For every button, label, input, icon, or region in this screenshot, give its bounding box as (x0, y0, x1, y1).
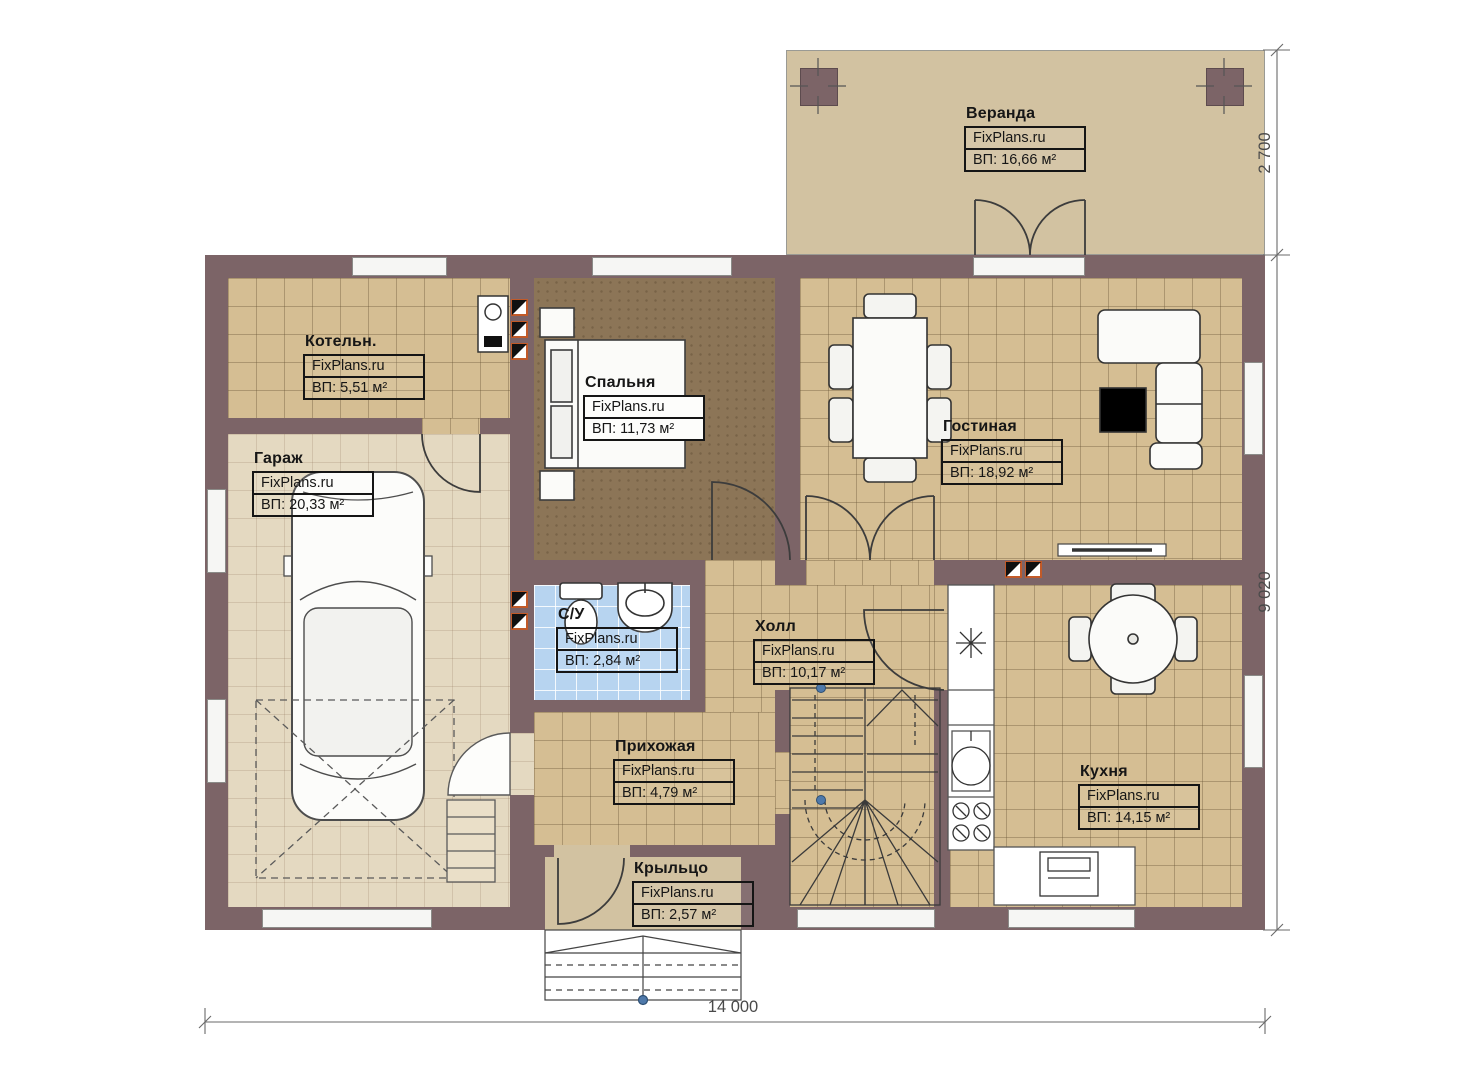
watermark: FixPlans.ru (615, 761, 733, 781)
room-area: ВП: 5,51 м² (305, 376, 423, 398)
watermark: FixPlans.ru (558, 629, 676, 649)
room-area: ВП: 2,84 м² (558, 649, 676, 671)
room-name: Холл (755, 618, 875, 636)
kitchen-table-icon (1069, 584, 1197, 694)
porch-steps-icon (545, 930, 741, 1005)
room-label-porch: Крыльцо FixPlans.ru ВП: 2,57 м² (632, 860, 754, 927)
room-info-box: FixPlans.ru ВП: 10,17 м² (753, 639, 875, 685)
survey-node-icon (817, 684, 826, 805)
room-label-veranda: Веранда FixPlans.ru ВП: 16,66 м² (964, 105, 1086, 172)
kitchen-door-icon (864, 610, 944, 690)
room-name: Спальня (585, 374, 705, 392)
room-label-boiler: Котельн. FixPlans.ru ВП: 5,51 м² (303, 333, 425, 400)
dim-house-depth: 9 020 (1256, 571, 1274, 612)
room-label-kitchen: Кухня FixPlans.ru ВП: 14,15 м² (1078, 763, 1200, 830)
room-label-bedroom: Спальня FixPlans.ru ВП: 11,73 м² (583, 374, 705, 441)
garage-step-icon (447, 800, 495, 882)
room-area: ВП: 2,57 м² (634, 903, 752, 925)
watermark: FixPlans.ru (755, 641, 873, 661)
staircase-icon (790, 688, 940, 905)
room-area: ВП: 14,15 м² (1080, 806, 1198, 828)
kitchen-sink-counter-icon (994, 847, 1135, 905)
car-icon (284, 472, 432, 820)
room-info-box: FixPlans.ru ВП: 16,66 м² (964, 126, 1086, 172)
room-info-box: FixPlans.ru ВП: 2,84 м² (556, 627, 678, 673)
room-name: Кухня (1080, 763, 1200, 781)
watermark: FixPlans.ru (254, 473, 372, 493)
room-label-living: Гостиная FixPlans.ru ВП: 18,92 м² (941, 418, 1063, 485)
room-name: Гараж (254, 450, 374, 468)
room-info-box: FixPlans.ru ВП: 18,92 м² (941, 439, 1063, 485)
entry-door-icon (558, 858, 624, 924)
room-area: ВП: 4,79 м² (615, 781, 733, 803)
room-name: Прихожая (615, 738, 735, 756)
tv-console-icon (1058, 544, 1166, 556)
garage-door-swing-icon (448, 733, 510, 795)
room-name: Веранда (966, 105, 1086, 123)
room-label-garage: Гараж FixPlans.ru ВП: 20,33 м² (252, 450, 374, 517)
dining-table-icon (829, 294, 951, 482)
bedroom-door-icon (712, 482, 790, 560)
side-table-icon (1100, 388, 1146, 432)
boiler-unit-icon (478, 296, 508, 352)
living-double-door-icon (806, 496, 934, 560)
room-area: ВП: 10,17 м² (755, 661, 873, 683)
watermark: FixPlans.ru (966, 128, 1084, 148)
boiler-door-icon (422, 434, 480, 492)
room-info-box: FixPlans.ru ВП: 14,15 м² (1078, 784, 1200, 830)
veranda-double-door-icon (975, 200, 1085, 255)
dim-house-width: 14 000 (708, 998, 758, 1016)
room-info-box: FixPlans.ru ВП: 2,57 м² (632, 881, 754, 927)
watermark: FixPlans.ru (1080, 786, 1198, 806)
room-name: С/У (558, 606, 678, 624)
room-area: ВП: 16,66 м² (966, 148, 1084, 170)
watermark: FixPlans.ru (585, 397, 703, 417)
room-area: ВП: 18,92 м² (943, 461, 1061, 483)
room-info-box: FixPlans.ru ВП: 11,73 м² (583, 395, 705, 441)
room-name: Котельн. (305, 333, 425, 351)
room-label-bathroom: С/У FixPlans.ru ВП: 2,84 м² (556, 606, 678, 673)
kitchen-counter-icon (948, 585, 994, 850)
room-info-box: FixPlans.ru ВП: 5,51 м² (303, 354, 425, 400)
watermark: FixPlans.ru (943, 441, 1061, 461)
room-name: Гостиная (943, 418, 1063, 436)
room-area: ВП: 20,33 м² (254, 493, 372, 515)
dim-veranda-depth: 2 700 (1256, 132, 1274, 173)
floor-plan: 2 700 9 020 14 000 Веранда FixPlans.ru В… (0, 0, 1473, 1080)
room-label-hall: Холл FixPlans.ru ВП: 10,17 м² (753, 618, 875, 685)
room-label-hallway: Прихожая FixPlans.ru ВП: 4,79 м² (613, 738, 735, 805)
watermark: FixPlans.ru (634, 883, 752, 903)
room-info-box: FixPlans.ru ВП: 20,33 м² (252, 471, 374, 517)
room-info-box: FixPlans.ru ВП: 4,79 м² (613, 759, 735, 805)
watermark: FixPlans.ru (305, 356, 423, 376)
room-name: Крыльцо (634, 860, 754, 878)
room-area: ВП: 11,73 м² (585, 417, 703, 439)
